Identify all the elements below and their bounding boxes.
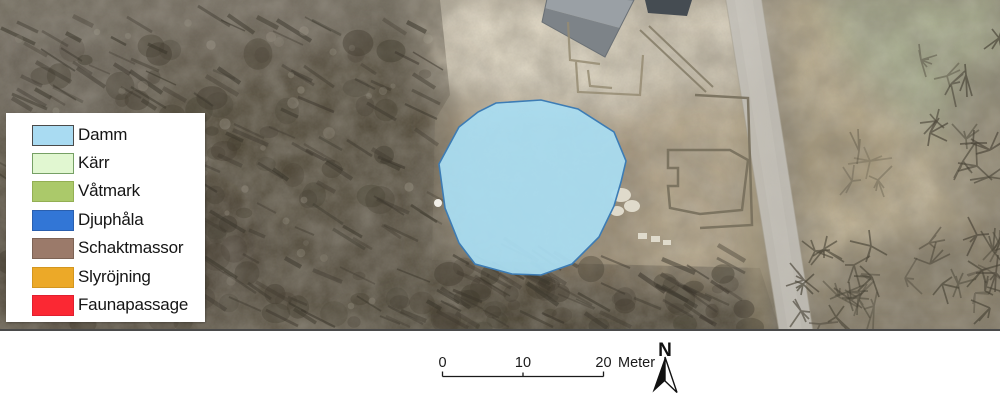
svg-text:0: 0 [438,355,446,371]
svg-text:20: 20 [595,355,611,371]
svg-text:10: 10 [515,355,531,371]
